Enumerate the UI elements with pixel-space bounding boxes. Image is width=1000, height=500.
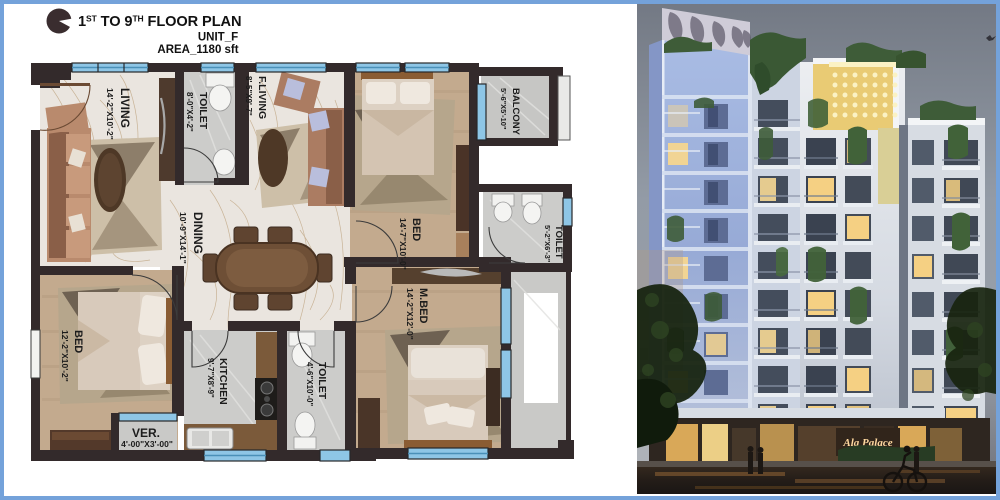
svg-text:DINING: DINING xyxy=(191,212,205,254)
svg-text:F.LIVING: F.LIVING xyxy=(256,76,268,119)
svg-text:1ST TO 9TH FLOOR PLAN: 1ST TO 9TH FLOOR PLAN xyxy=(78,14,241,30)
svg-text:M.BED: M.BED xyxy=(417,288,429,324)
svg-text:14'-2"X12'-0": 14'-2"X12'-0" xyxy=(405,288,415,340)
svg-text:12'-2"X10'-2": 12'-2"X10'-2" xyxy=(60,330,70,382)
svg-text:TOILET: TOILET xyxy=(197,92,209,130)
svg-text:9'-7"X8'-9": 9'-7"X8'-9" xyxy=(206,358,215,398)
svg-text:AREA_1180 sft: AREA_1180 sft xyxy=(157,44,238,56)
svg-text:5'-6"X5'-10": 5'-6"X5'-10" xyxy=(499,88,508,130)
svg-text:BALCONY: BALCONY xyxy=(510,88,521,136)
svg-text:LIVING: LIVING xyxy=(118,88,132,128)
svg-text:TOILET: TOILET xyxy=(553,225,564,259)
svg-text:4'-00"X3'-00": 4'-00"X3'-00" xyxy=(121,439,173,449)
svg-text:10'-9"X14'-1": 10'-9"X14'-1" xyxy=(178,212,188,264)
svg-text:UNIT_F: UNIT_F xyxy=(198,32,238,44)
svg-text:14'-2"X10'-2": 14'-2"X10'-2" xyxy=(105,88,115,140)
svg-text:VER.: VER. xyxy=(132,426,160,440)
svg-text:BED: BED xyxy=(72,330,84,353)
svg-text:BED: BED xyxy=(410,218,422,241)
svg-text:TOILET: TOILET xyxy=(316,362,328,400)
svg-text:KITCHEN: KITCHEN xyxy=(217,358,229,405)
svg-text:8'-5"X9'-7": 8'-5"X9'-7" xyxy=(244,76,253,116)
svg-text:14'-7"X10'-0": 14'-7"X10'-0" xyxy=(398,218,408,270)
svg-text:4'-6"X10'-0": 4'-6"X10'-0" xyxy=(305,362,314,407)
svg-text:8'-0"X4'-2": 8'-0"X4'-2" xyxy=(185,92,194,132)
svg-text:5'-2"X6'-3": 5'-2"X6'-3" xyxy=(543,225,552,263)
